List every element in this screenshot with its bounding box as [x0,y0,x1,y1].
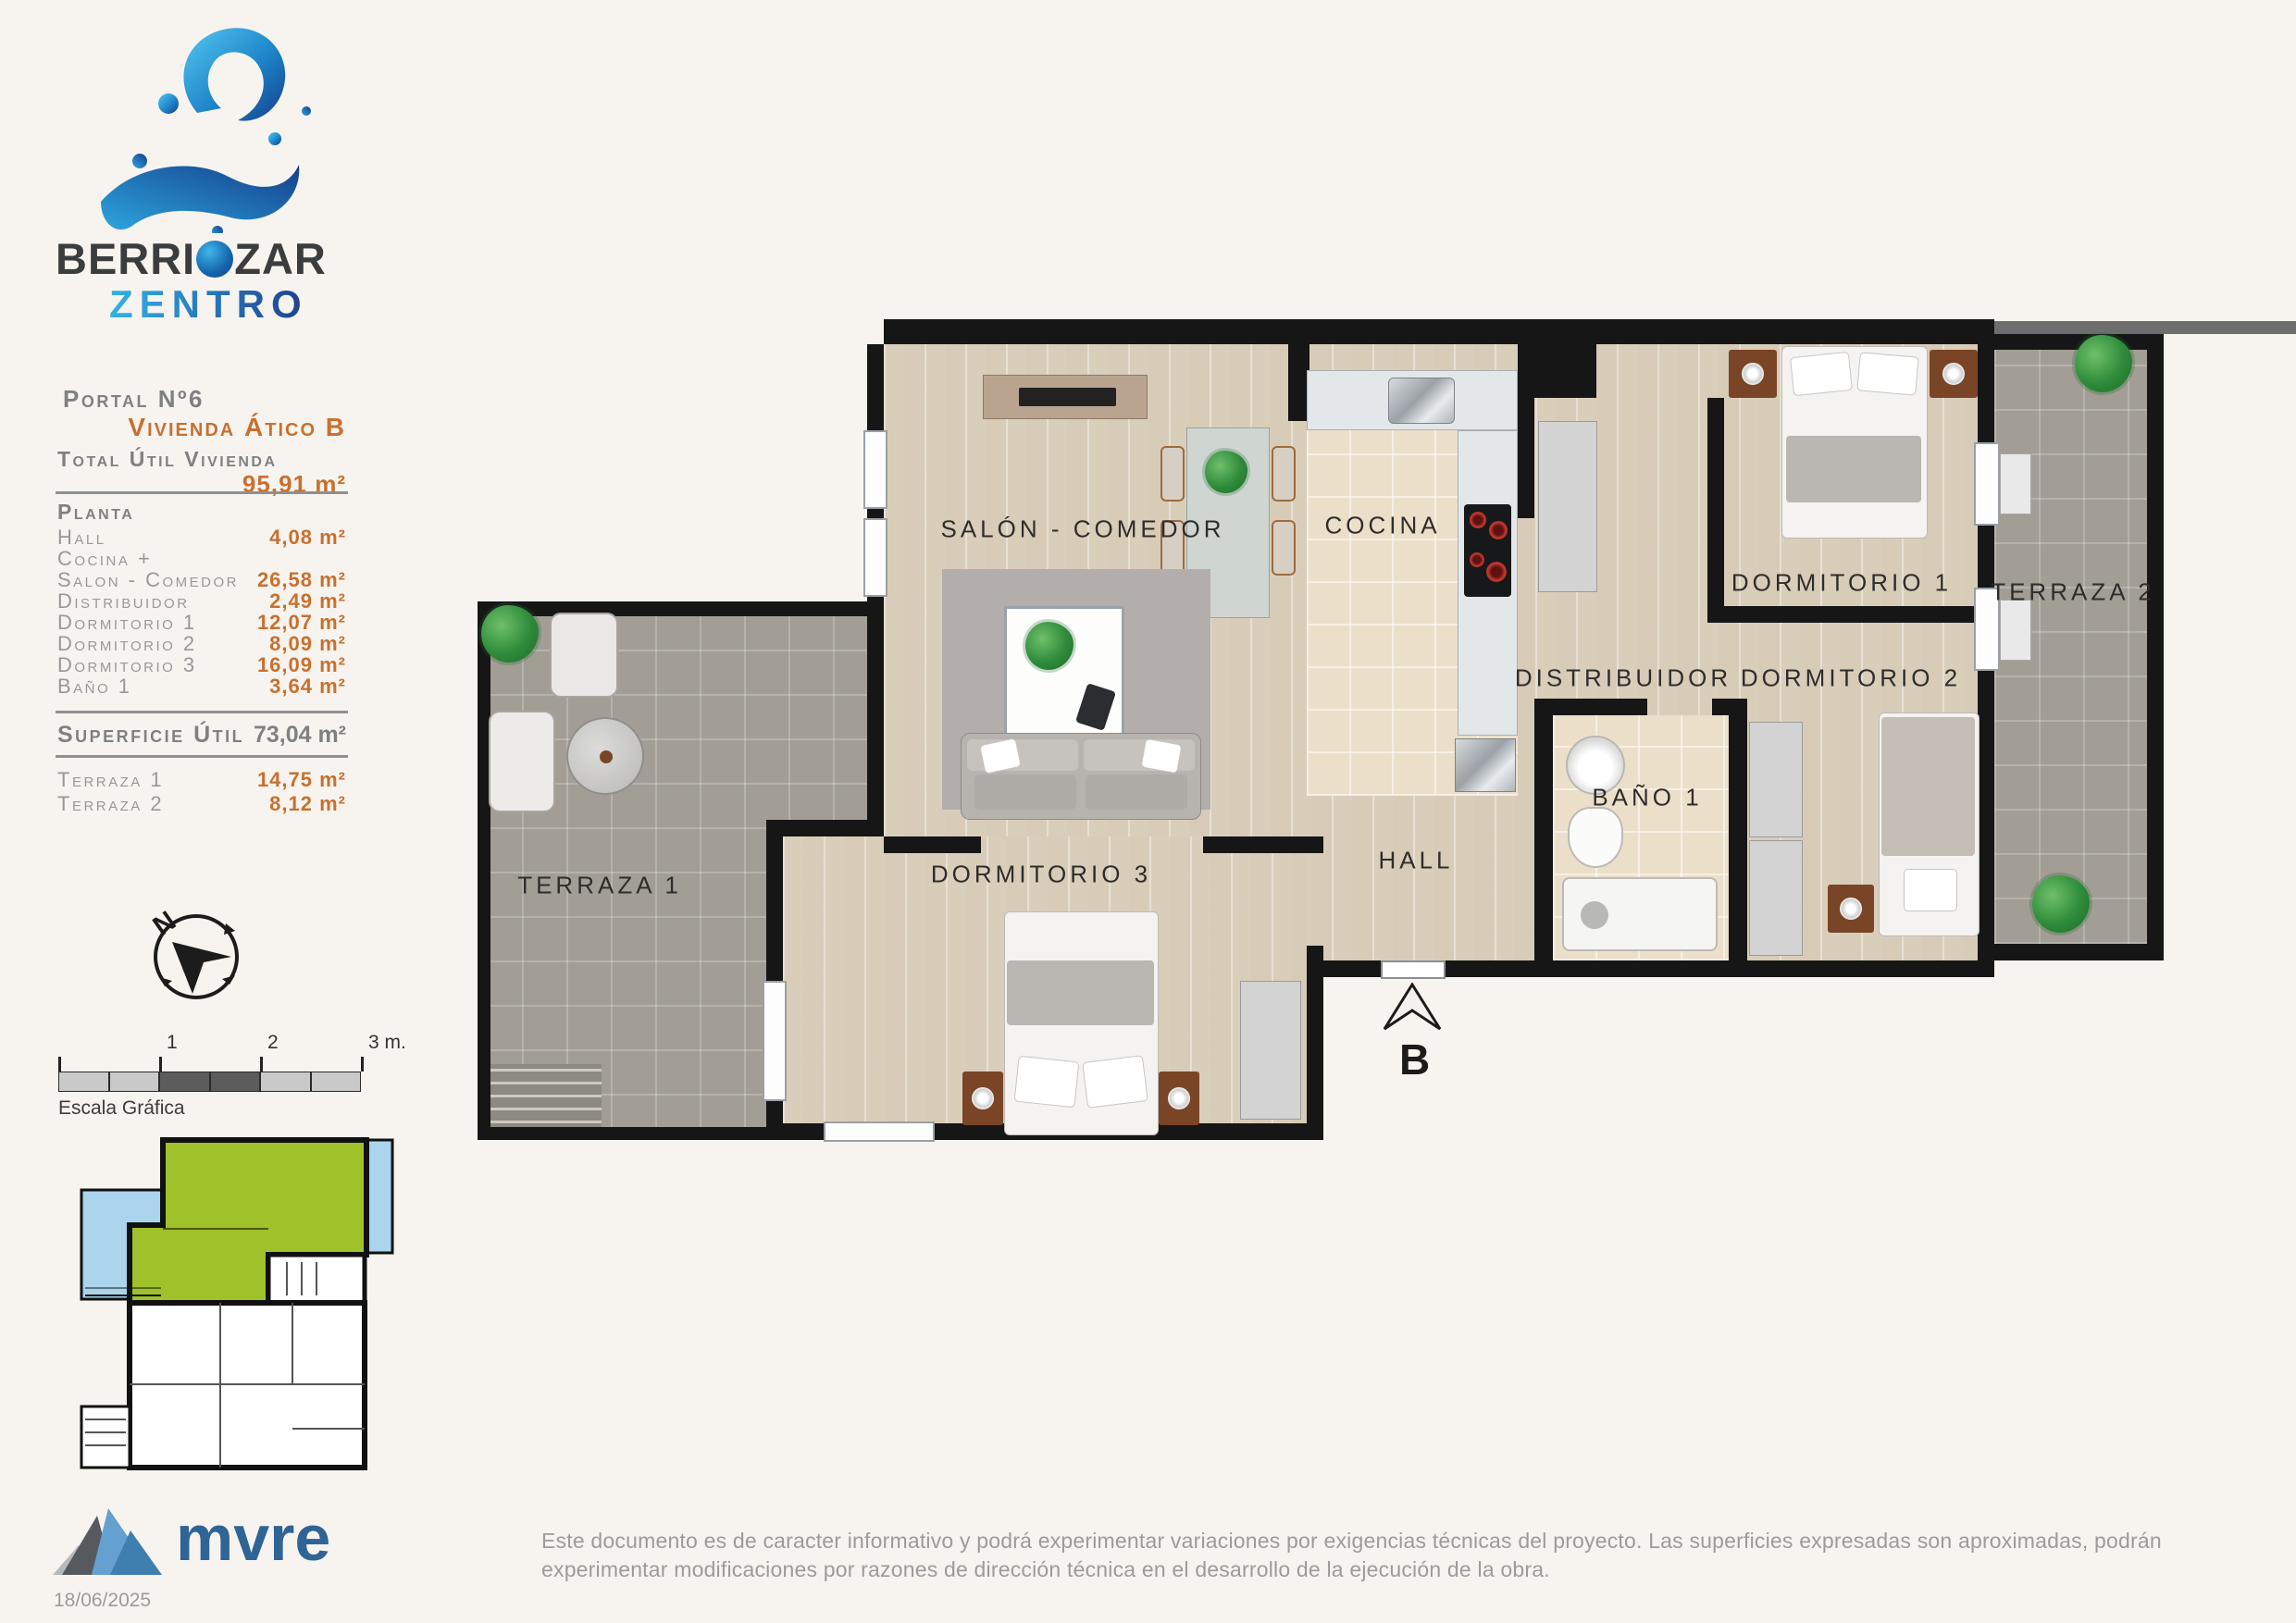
wardrobe [1749,722,1803,837]
portal-title: Portal Nº6 [63,385,205,414]
neighbor-wall-line [1994,321,2296,334]
wall [884,319,1994,344]
planta-row: Dormitorio 28,09 m² [57,632,346,654]
room-label-terraza-1: TERRAZA 1 [517,872,682,900]
planta-row: Cocina + [57,547,346,569]
terrace-table [566,717,644,795]
brand-o-disc-icon [196,241,233,278]
scale-tick-label: 3 m. [368,1032,406,1054]
mvre-mountain-icon [51,1506,171,1580]
entrance-arrow-icon [1383,983,1442,1033]
wall [1534,699,1647,715]
window [863,518,887,597]
window [824,1121,935,1142]
terraza-row-value: 14,75 m² [257,768,346,792]
wall [1994,944,2164,960]
compass-icon: N [139,899,250,1006]
planta-title: Planta [57,500,134,525]
terraza-row-label: Terraza 1 [57,768,164,792]
planta-row: Salon - Comedor26,58 m² [57,568,346,590]
entrance-door-sill [1381,960,1446,979]
scale-caption: Escala Gráfica [58,1097,185,1120]
wall [478,601,884,616]
wardrobe [1749,840,1803,956]
room-label-salon-comedor: SALÓN - COMEDOR [940,515,1224,544]
brand-splash-icon [79,20,319,233]
nightstand [962,1072,1003,1125]
window [1974,442,2000,526]
window-sill [2000,600,2031,661]
window-sill [2000,453,2031,514]
wall [1307,960,1381,977]
planta-row: Distribuidor2,49 m² [57,589,346,612]
scale-bar [58,1072,361,1092]
nightstand [1828,885,1874,933]
brand-subname: ZENTRO [109,282,308,327]
scale-tick [159,1057,162,1072]
wall [1203,836,1323,853]
scale-tick-label: 2 [267,1032,279,1054]
unit-name: Vivienda Ático B [57,413,346,442]
brand-name-part1: BERRI [56,233,195,284]
wall [1707,398,1724,623]
room-label-cocina: COCINA [1324,512,1440,540]
room-row-value: 3,64 m² [269,675,346,699]
wall [478,1127,783,1140]
kitchen-dishwasher [1455,738,1516,792]
divider [56,711,348,713]
divider [56,491,348,494]
wall [1707,606,1978,623]
mvre-logo-text: mvre [176,1501,330,1575]
planta-row: Dormitorio 112,07 m² [57,611,346,633]
sofa [961,733,1201,820]
key-plan-minimap [54,1133,410,1480]
terraza-row-label: Terraza 2 [57,792,164,816]
wall [1729,715,1747,960]
room-row-label: Baño 1 [57,675,132,699]
planta-row: Dormitorio 316,09 m² [57,653,346,675]
terraza-row: Terraza 28,12 m² [57,792,346,814]
room-label-distribuidor: DISTRIBUIDOR [1515,664,1731,693]
brand-name-part2: ZAR [234,233,327,284]
wall [478,601,490,1140]
wardrobe [1240,981,1301,1120]
bed-dormitorio-3 [1004,911,1159,1135]
planta-row: Baño 13,64 m² [57,675,346,697]
toilet [1568,807,1623,868]
room-label-dormitorio-3: DORMITORIO 3 [931,861,1151,889]
kitchen-sink [1388,378,1455,424]
wall [2147,334,2164,960]
terraza-row: Terraza 114,75 m² [57,768,346,790]
tv-sideboard [983,375,1148,419]
nightstand [1159,1072,1199,1125]
fridge-column [1538,421,1597,592]
divider [56,755,348,758]
bed-dormitorio-2 [1879,712,1980,936]
terrace-lounge-chair [489,711,555,812]
planta-row: Hall4,08 m² [57,526,346,548]
terrace-chair [550,613,618,698]
superficie-value: 73,04 m² [254,722,346,749]
dining-chair [1160,446,1185,502]
room-label-bano-1: BAÑO 1 [1592,784,1702,812]
wall [884,836,981,853]
scale-tick-label: 1 [167,1032,178,1054]
scale-tick [58,1057,61,1072]
terraza-row-value: 8,12 m² [269,792,346,816]
room-label-dormitorio-1: DORMITORIO 1 [1731,569,1952,598]
dining-chair [1272,520,1296,576]
nightstand [1729,350,1777,398]
bed-dormitorio-1 [1781,346,1928,539]
shower-tray [1562,877,1718,951]
wall [766,820,884,836]
scale-tick [260,1057,263,1072]
compass-north-label: N [147,906,181,942]
scale-tick [361,1057,364,1072]
room-label-hall: HALL [1378,847,1453,875]
superficie-row: Superficie Útil 73,04 m² [57,722,346,744]
brand-name: BERRIZAR [56,233,327,284]
entrance-label: B [1399,1035,1430,1084]
room-label-terraza-2: TERRAZA 2 [1991,578,2155,607]
wall [1712,699,1747,715]
document-date: 18/06/2025 [54,1590,151,1612]
dining-chair [1272,446,1296,502]
nightstand [1930,350,1978,398]
room-label-dormitorio-2: DORMITORIO 2 [1741,664,1961,693]
wall [1446,960,1994,977]
wall [1518,344,1534,518]
terraza-1-deck-slats [479,1064,602,1136]
total-util-value: 95,91 m² [57,470,346,499]
kitchen-hob [1464,504,1511,597]
wall [1534,715,1553,960]
window [763,981,787,1101]
superficie-label: Superficie Útil [57,722,244,749]
disclaimer-text: Este documento es de caracter informativ… [541,1527,2281,1584]
total-util-label: Total Útil Vivienda [57,447,278,472]
window [863,430,887,509]
